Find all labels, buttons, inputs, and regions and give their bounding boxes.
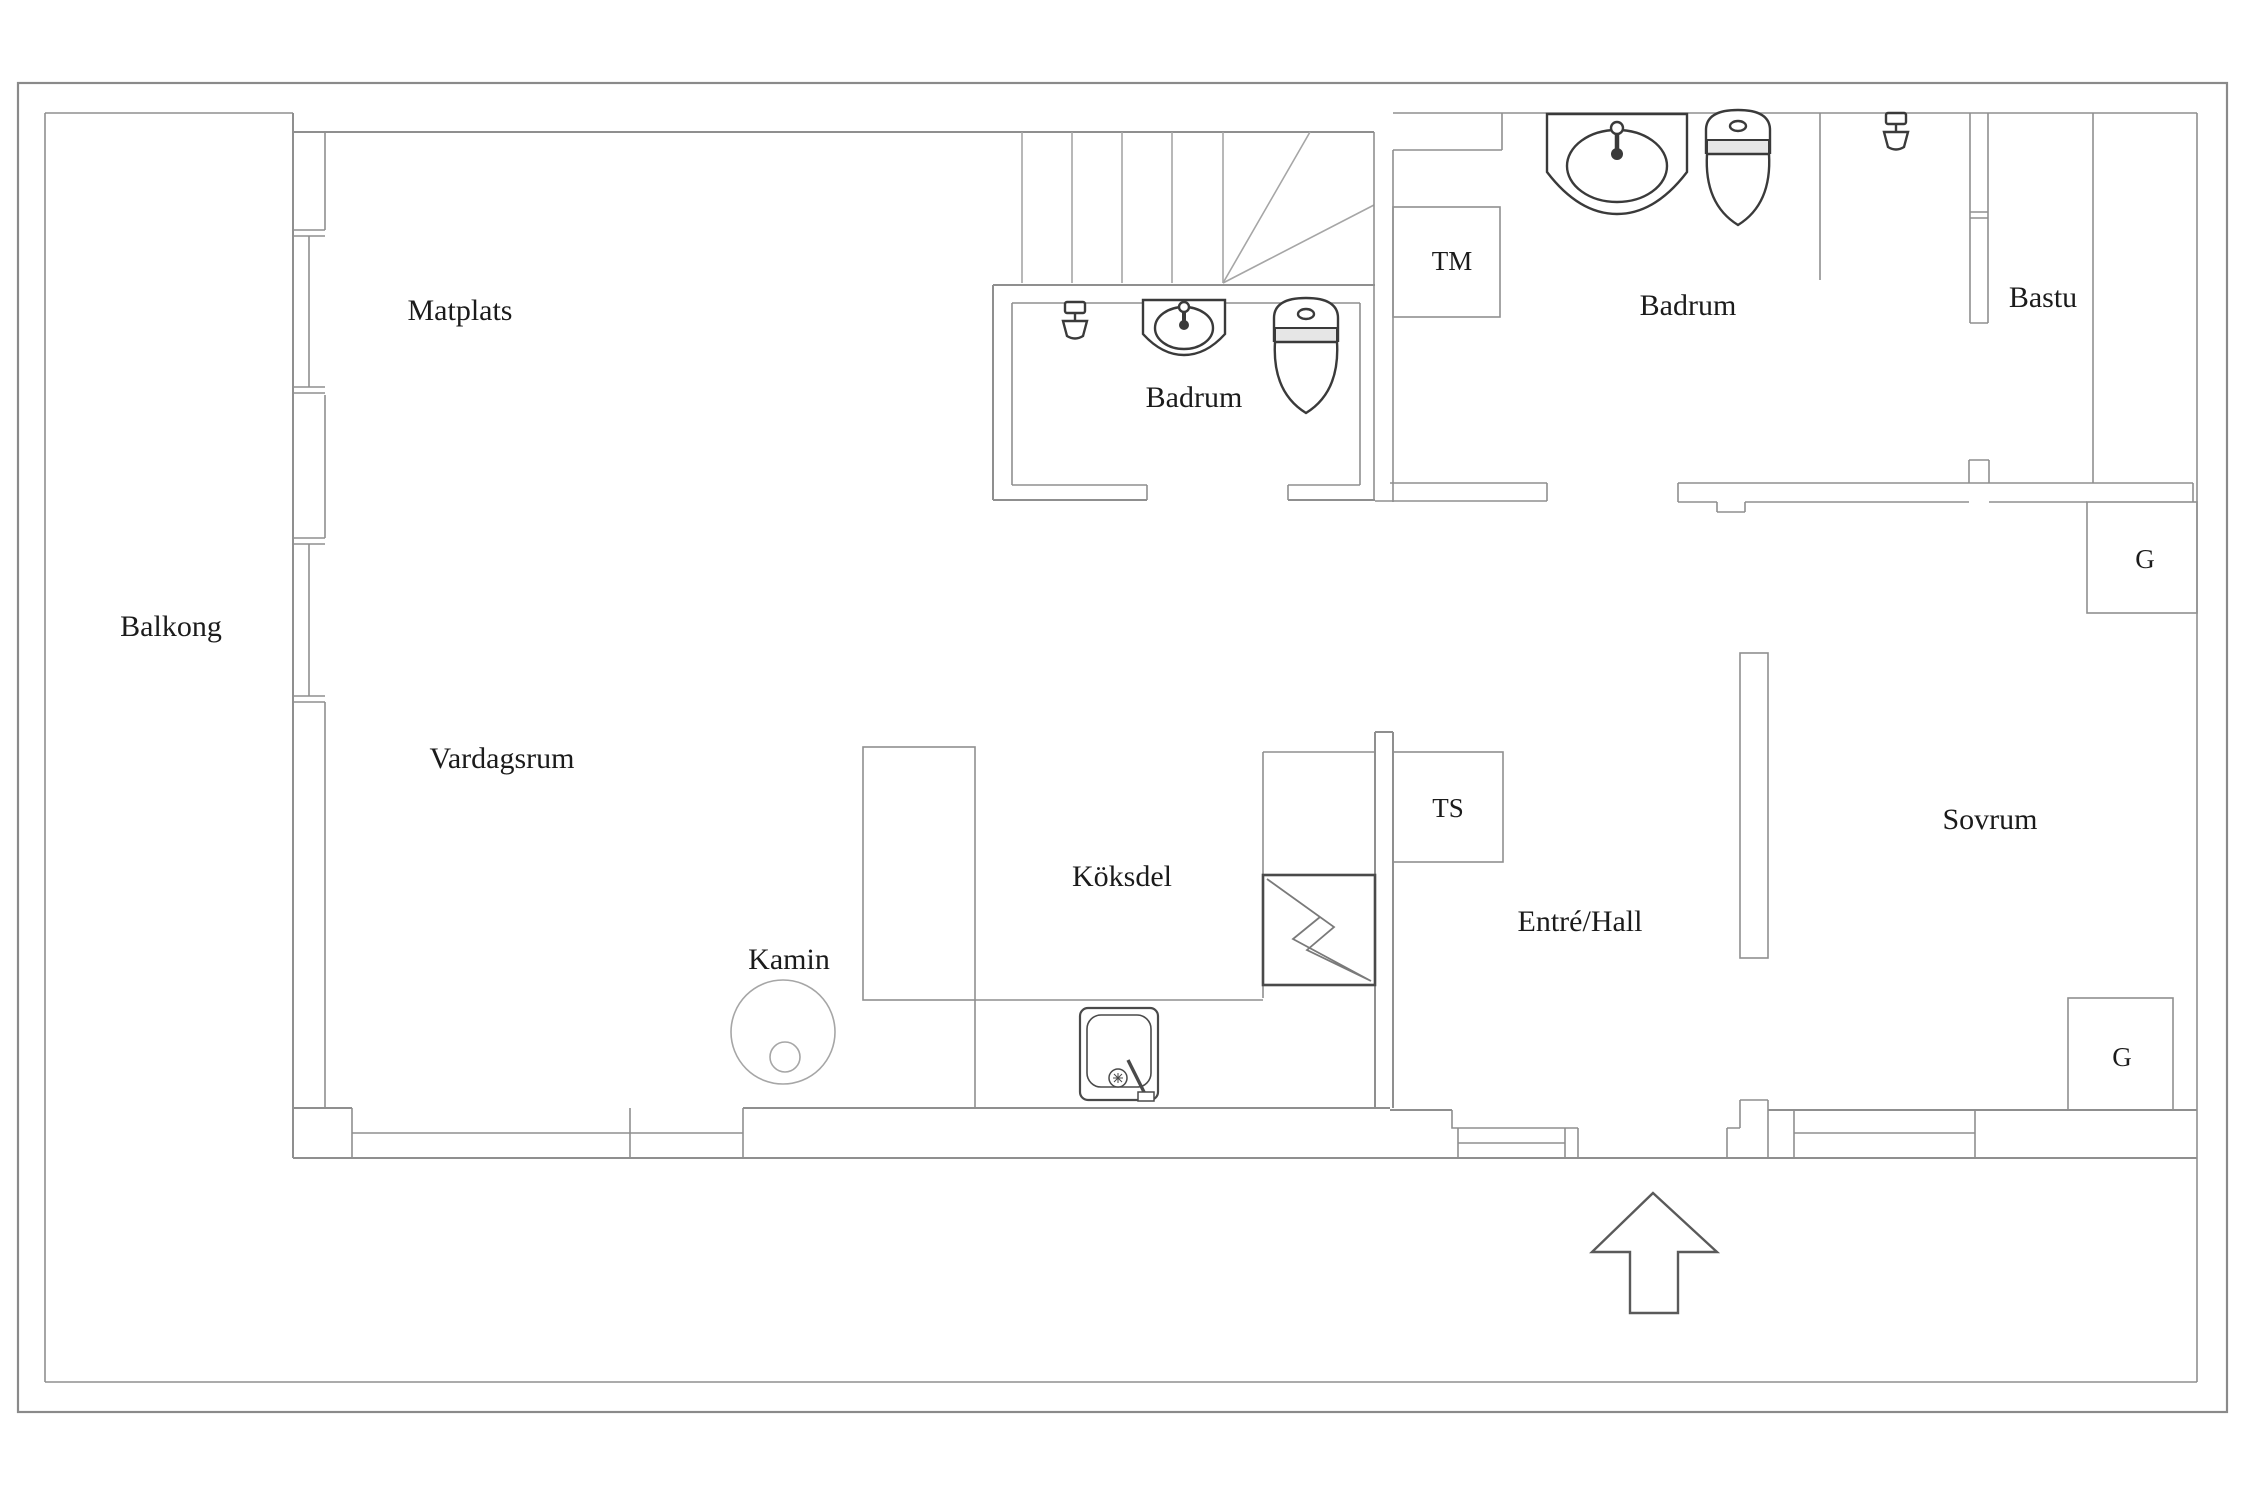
room-labels: MatplatsBadrumTMBadrumBastuBalkongGVarda… xyxy=(120,246,2155,1072)
g-top-label: G xyxy=(2135,544,2155,574)
g-bottom-label: G xyxy=(2112,1042,2132,1072)
washbasin-icon xyxy=(1547,114,1687,214)
kamin-label: Kamin xyxy=(748,943,830,976)
floor-plan-drawing: MatplatsBadrumTMBadrumBastuBalkongGVarda… xyxy=(0,0,2250,1500)
koksdel-label: Köksdel xyxy=(1072,860,1172,893)
fireplace-icon xyxy=(731,980,835,1084)
shower-icon xyxy=(1063,302,1087,339)
balkong-label: Balkong xyxy=(120,610,222,643)
badrum-1-label: Badrum xyxy=(1146,381,1243,414)
window xyxy=(293,230,325,393)
toilet-icon xyxy=(1706,110,1770,225)
ts-label: TS xyxy=(1432,793,1464,823)
tm-label: TM xyxy=(1432,246,1473,276)
kitchen-sink-icon xyxy=(1080,1008,1158,1101)
badrum-2-label: Badrum xyxy=(1640,289,1737,322)
window xyxy=(293,538,325,702)
matplats-label: Matplats xyxy=(408,294,513,327)
hall-wall-band xyxy=(1375,460,2193,512)
vardagsrum-label: Vardagsrum xyxy=(430,742,575,775)
toilet-icon xyxy=(1274,298,1338,413)
washbasin-icon xyxy=(1143,300,1225,355)
bastu-label: Bastu xyxy=(2009,281,2077,314)
shower-icon xyxy=(1884,113,1908,150)
window xyxy=(352,1108,743,1158)
sovrum-label: Sovrum xyxy=(1942,803,2037,836)
exterior-walls xyxy=(293,113,2197,1158)
floor-plan: MatplatsBadrumTMBadrumBastuBalkongGVarda… xyxy=(0,0,2250,1500)
wardrobe xyxy=(1740,653,1768,958)
electrical-panel-icon xyxy=(1263,875,1375,985)
window xyxy=(1794,1110,1975,1158)
entre-hall-label: Entré/Hall xyxy=(1518,905,1643,938)
tm-unit xyxy=(1393,113,1502,502)
entrance-door-sill xyxy=(1452,1110,1578,1158)
bedroom-door-jamb xyxy=(1727,1100,1768,1158)
entrance-arrow-icon xyxy=(1592,1193,1717,1313)
